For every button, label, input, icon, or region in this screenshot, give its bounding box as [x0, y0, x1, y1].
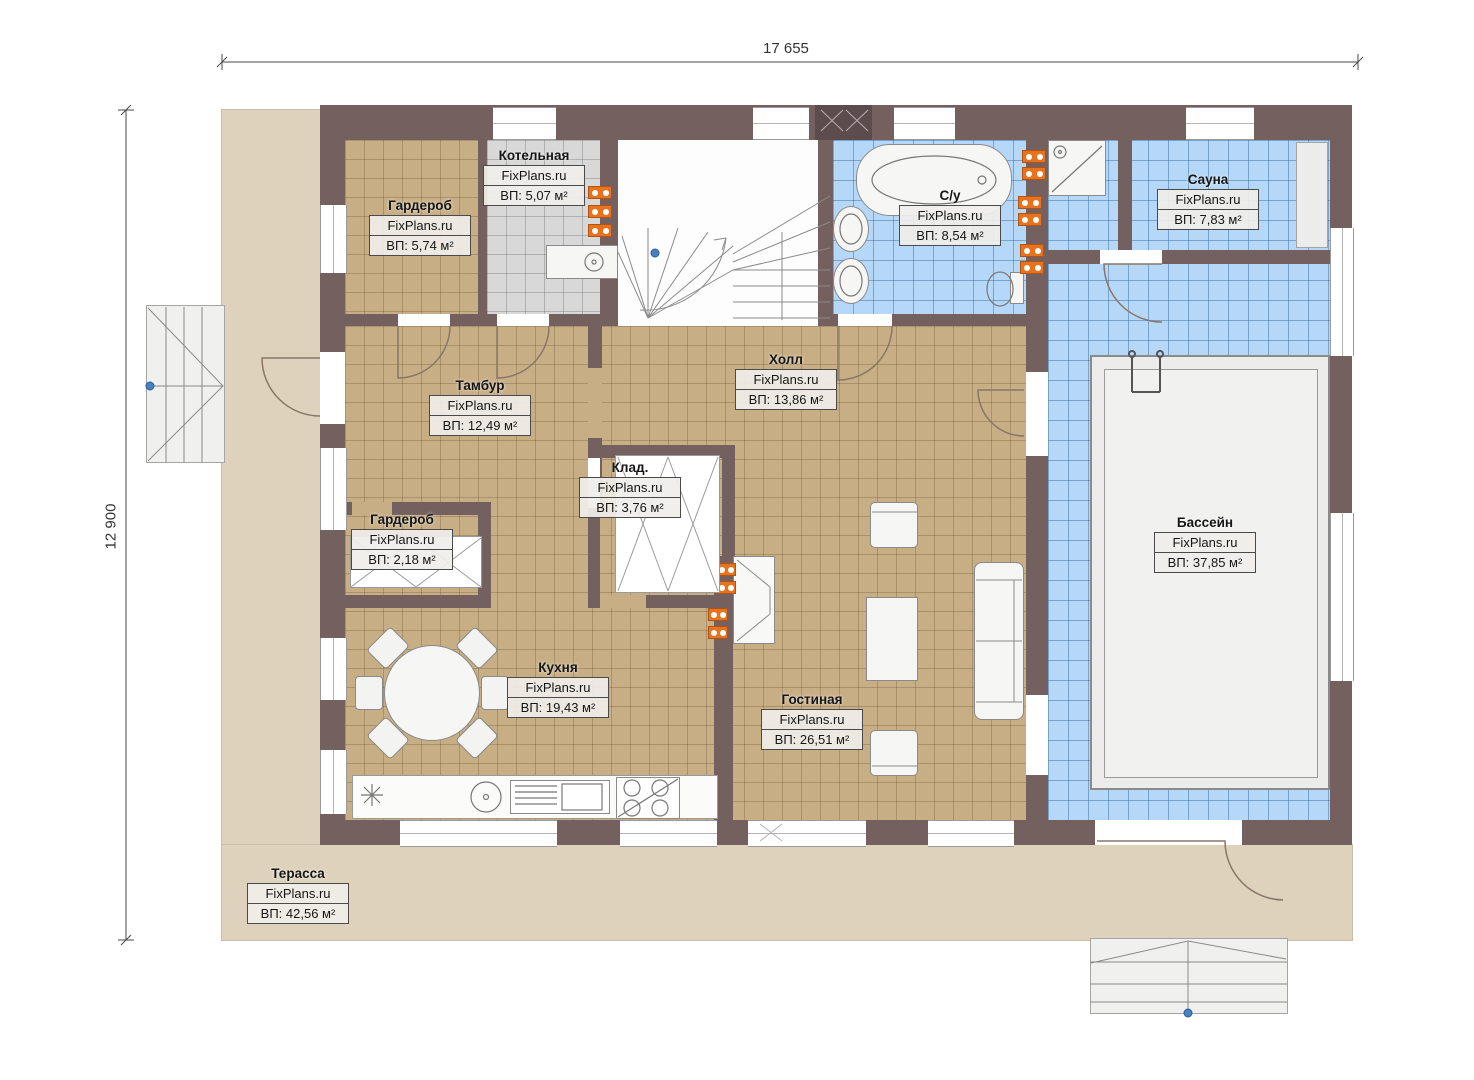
dining-table — [384, 645, 480, 741]
kitchen-appliance — [510, 780, 610, 814]
floor-plan-canvas: 17 655 12 900 — [0, 0, 1474, 1080]
pool-water — [1104, 369, 1318, 778]
window — [753, 107, 809, 140]
terrace-bottom-strip — [222, 845, 1352, 940]
door-opening-pool-hall — [1026, 372, 1048, 456]
wall-seg — [450, 314, 497, 326]
window — [320, 750, 347, 814]
watermark: FixPlans.ru — [484, 166, 584, 185]
coffee-table — [866, 597, 918, 681]
radiator — [588, 205, 612, 218]
window — [400, 820, 557, 847]
window — [320, 205, 347, 273]
door-opening-garderob-top — [398, 314, 450, 326]
room-label-sauna: Сауна FixPlans.ruВП: 7,83 м² — [1157, 172, 1259, 230]
radiator — [588, 186, 612, 199]
room-label-holl: Холл FixPlans.ruВП: 13,86 м² — [735, 352, 837, 410]
watermark: FixPlans.ru — [508, 678, 608, 697]
radiator — [1018, 213, 1042, 226]
wall-shower-sauna — [1118, 140, 1132, 250]
radiator — [1020, 244, 1044, 257]
chimney-block — [815, 105, 872, 140]
watermark: FixPlans.ru — [1155, 533, 1255, 552]
room-label-kotelnaya: Котельная FixPlans.ruВП: 5,07 м² — [483, 148, 585, 206]
room-area: ВП: 3,76 м² — [580, 497, 680, 517]
exterior-stairs-west — [146, 305, 225, 463]
watermark: FixPlans.ru — [352, 530, 452, 549]
floor-stairwell — [618, 140, 818, 326]
dimension-width-label: 17 655 — [763, 40, 809, 57]
room-area: ВП: 19,43 м² — [508, 697, 608, 717]
room-area: ВП: 7,83 м² — [1158, 209, 1258, 229]
room-label-bassein: Бассейн FixPlans.ruВП: 37,85 м² — [1154, 515, 1256, 573]
window — [620, 820, 717, 847]
toilet-tank — [1010, 272, 1024, 304]
opening-living-pool — [1026, 695, 1048, 775]
terrace-left-strip — [222, 110, 320, 940]
window — [493, 107, 556, 140]
room-label-garderob-top: Гардероб FixPlans.ruВП: 5,74 м² — [369, 198, 471, 256]
stove — [616, 777, 680, 819]
watermark: FixPlans.ru — [762, 710, 862, 729]
room-area: ВП: 42,56 м² — [248, 903, 348, 923]
shower-tray — [1048, 140, 1106, 196]
armchair — [870, 730, 918, 776]
terrace-door-opening — [1095, 820, 1242, 845]
room-label-terrassa: Терасса FixPlans.ruВП: 42,56 м² — [247, 866, 349, 924]
window — [748, 820, 866, 847]
wall-seg — [549, 314, 618, 326]
room-label-garderob-mid: Гардероб FixPlans.ruВП: 2,18 м² — [351, 512, 453, 570]
door-opening-su — [838, 314, 892, 326]
sink — [833, 258, 869, 304]
wall-seg — [892, 314, 1026, 326]
armchair — [870, 502, 918, 548]
passage-tambur-holl — [588, 368, 602, 438]
radiator — [1018, 196, 1042, 209]
window — [320, 448, 347, 530]
fireplace — [733, 556, 775, 644]
window — [928, 820, 1014, 847]
watermark: FixPlans.ru — [736, 370, 836, 389]
wall-klad-left — [588, 508, 600, 608]
chair — [355, 676, 383, 710]
room-area: ВП: 2,18 м² — [352, 549, 452, 569]
room-label-kuhnya: Кухня FixPlans.ruВП: 19,43 м² — [507, 660, 609, 718]
door-opening-kotelnaya — [497, 314, 549, 326]
room-area: ВП: 8,54 м² — [900, 225, 1000, 245]
window — [320, 638, 347, 700]
radiator — [708, 608, 728, 621]
window — [894, 107, 955, 140]
room-label-klad: Клад. FixPlans.ruВП: 3,76 м² — [579, 460, 681, 518]
boiler-unit — [546, 245, 618, 279]
sofa — [974, 562, 1024, 720]
dimension-height-label: 12 900 — [102, 504, 119, 550]
radiator — [1022, 150, 1046, 163]
window — [1330, 513, 1354, 681]
watermark: FixPlans.ru — [1158, 190, 1258, 209]
wall-garderob-kitchen — [345, 595, 491, 608]
door-opening-klad-south — [600, 595, 646, 608]
watermark: FixPlans.ru — [248, 884, 348, 903]
sink — [833, 206, 869, 252]
room-area: ВП: 12,49 м² — [430, 415, 530, 435]
watermark: FixPlans.ru — [900, 206, 1000, 225]
chair — [481, 676, 509, 710]
radiator — [1020, 261, 1044, 274]
room-label-gostinaya: Гостиная FixPlans.ruВП: 26,51 м² — [761, 692, 863, 750]
wall-seg — [345, 314, 398, 326]
room-area: ВП: 5,07 м² — [484, 185, 584, 205]
window — [1330, 228, 1354, 356]
window — [1186, 107, 1254, 140]
exterior-stairs-south — [1090, 938, 1288, 1014]
room-area: ВП: 37,85 м² — [1155, 552, 1255, 572]
radiator — [708, 626, 728, 639]
wall-sauna-bottom — [1048, 250, 1352, 264]
room-area: ВП: 26,51 м² — [762, 729, 862, 749]
door-opening-sauna — [1100, 250, 1162, 264]
radiator — [1022, 167, 1046, 180]
room-label-su: С/у FixPlans.ruВП: 8,54 м² — [899, 188, 1001, 246]
wall-tambur-holl-jamb — [588, 326, 602, 368]
watermark: FixPlans.ru — [370, 216, 470, 235]
room-label-tambur: Тамбур FixPlans.ruВП: 12,49 м² — [429, 378, 531, 436]
watermark: FixPlans.ru — [580, 478, 680, 497]
wall-stair-su — [818, 140, 833, 326]
room-area: ВП: 13,86 м² — [736, 389, 836, 409]
radiator — [588, 224, 612, 237]
entrance-door-opening — [320, 352, 345, 424]
sauna-bench — [1296, 142, 1328, 248]
room-area: ВП: 5,74 м² — [370, 235, 470, 255]
watermark: FixPlans.ru — [430, 396, 530, 415]
